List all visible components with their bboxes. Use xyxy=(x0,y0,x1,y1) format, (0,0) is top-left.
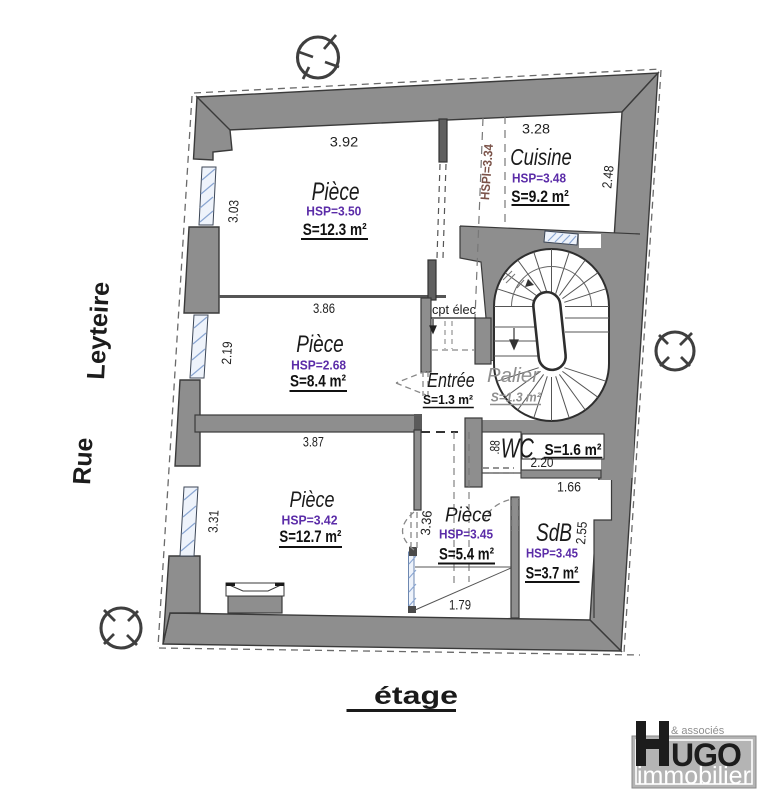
svg-text:3.36: 3.36 xyxy=(418,510,435,536)
svg-text:3.86: 3.86 xyxy=(313,301,335,316)
svg-text:S=5.4 m²: S=5.4 m² xyxy=(439,545,494,564)
svg-text:.88: .88 xyxy=(487,440,503,455)
svg-text:2.55: 2.55 xyxy=(573,521,590,545)
svg-text:Pièce: Pièce xyxy=(312,178,360,206)
svg-text:S=12.7 m²: S=12.7 m² xyxy=(279,527,341,546)
svg-text:Pièce: Pièce xyxy=(296,331,344,358)
svg-text:2.48: 2.48 xyxy=(599,165,616,189)
svg-text:Leyteire: Leyteire xyxy=(82,281,115,380)
svg-text:Palier: Palier xyxy=(487,365,540,387)
svg-text:3.87: 3.87 xyxy=(303,435,324,450)
svg-text:S=8.4 m²: S=8.4 m² xyxy=(290,372,346,391)
svg-text:Cuisine: Cuisine xyxy=(510,144,572,170)
svg-text:S=12.3 m²: S=12.3 m² xyxy=(303,220,367,239)
svg-text:1.79: 1.79 xyxy=(449,598,471,613)
svg-text:2.19: 2.19 xyxy=(219,341,235,365)
svg-text:S=1.3 m²: S=1.3 m² xyxy=(491,390,542,405)
svg-text:3.03: 3.03 xyxy=(225,200,241,224)
svg-text:Pièce: Pièce xyxy=(445,504,492,527)
svg-text:HSP=3.48: HSP=3.48 xyxy=(512,172,566,186)
svg-text:S=1.3 m²: S=1.3 m² xyxy=(423,392,474,407)
svg-text:immobilier: immobilier xyxy=(637,762,751,790)
svg-text:HSP=3.45: HSP=3.45 xyxy=(439,528,493,542)
svg-text:SdB: SdB xyxy=(536,519,572,547)
svg-text:étage: étage xyxy=(374,682,458,710)
svg-text:Pièce: Pièce xyxy=(290,487,335,512)
svg-text:3.28: 3.28 xyxy=(522,122,550,137)
svg-text:S=9.2 m²: S=9.2 m² xyxy=(511,187,569,206)
svg-text:HSP=3.50: HSP=3.50 xyxy=(306,205,361,219)
svg-text:& associés: & associés xyxy=(671,725,725,737)
svg-text:3.92: 3.92 xyxy=(330,135,358,150)
svg-text:WC: WC xyxy=(501,433,535,464)
svg-text:HSP=3.42: HSP=3.42 xyxy=(282,514,338,528)
svg-text:Entrée: Entrée xyxy=(427,370,475,392)
svg-text:HSP=3.45: HSP=3.45 xyxy=(526,547,578,561)
svg-text:3.31: 3.31 xyxy=(205,510,221,534)
svg-text:HSP=2.68: HSP=2.68 xyxy=(291,359,346,373)
svg-text:S=3.7 m²: S=3.7 m² xyxy=(526,564,579,583)
svg-text:cpt élec: cpt élec xyxy=(432,302,476,317)
svg-text:Rue: Rue xyxy=(68,437,98,485)
svg-text:2.20: 2.20 xyxy=(531,455,554,470)
svg-text:1.66: 1.66 xyxy=(557,480,581,495)
